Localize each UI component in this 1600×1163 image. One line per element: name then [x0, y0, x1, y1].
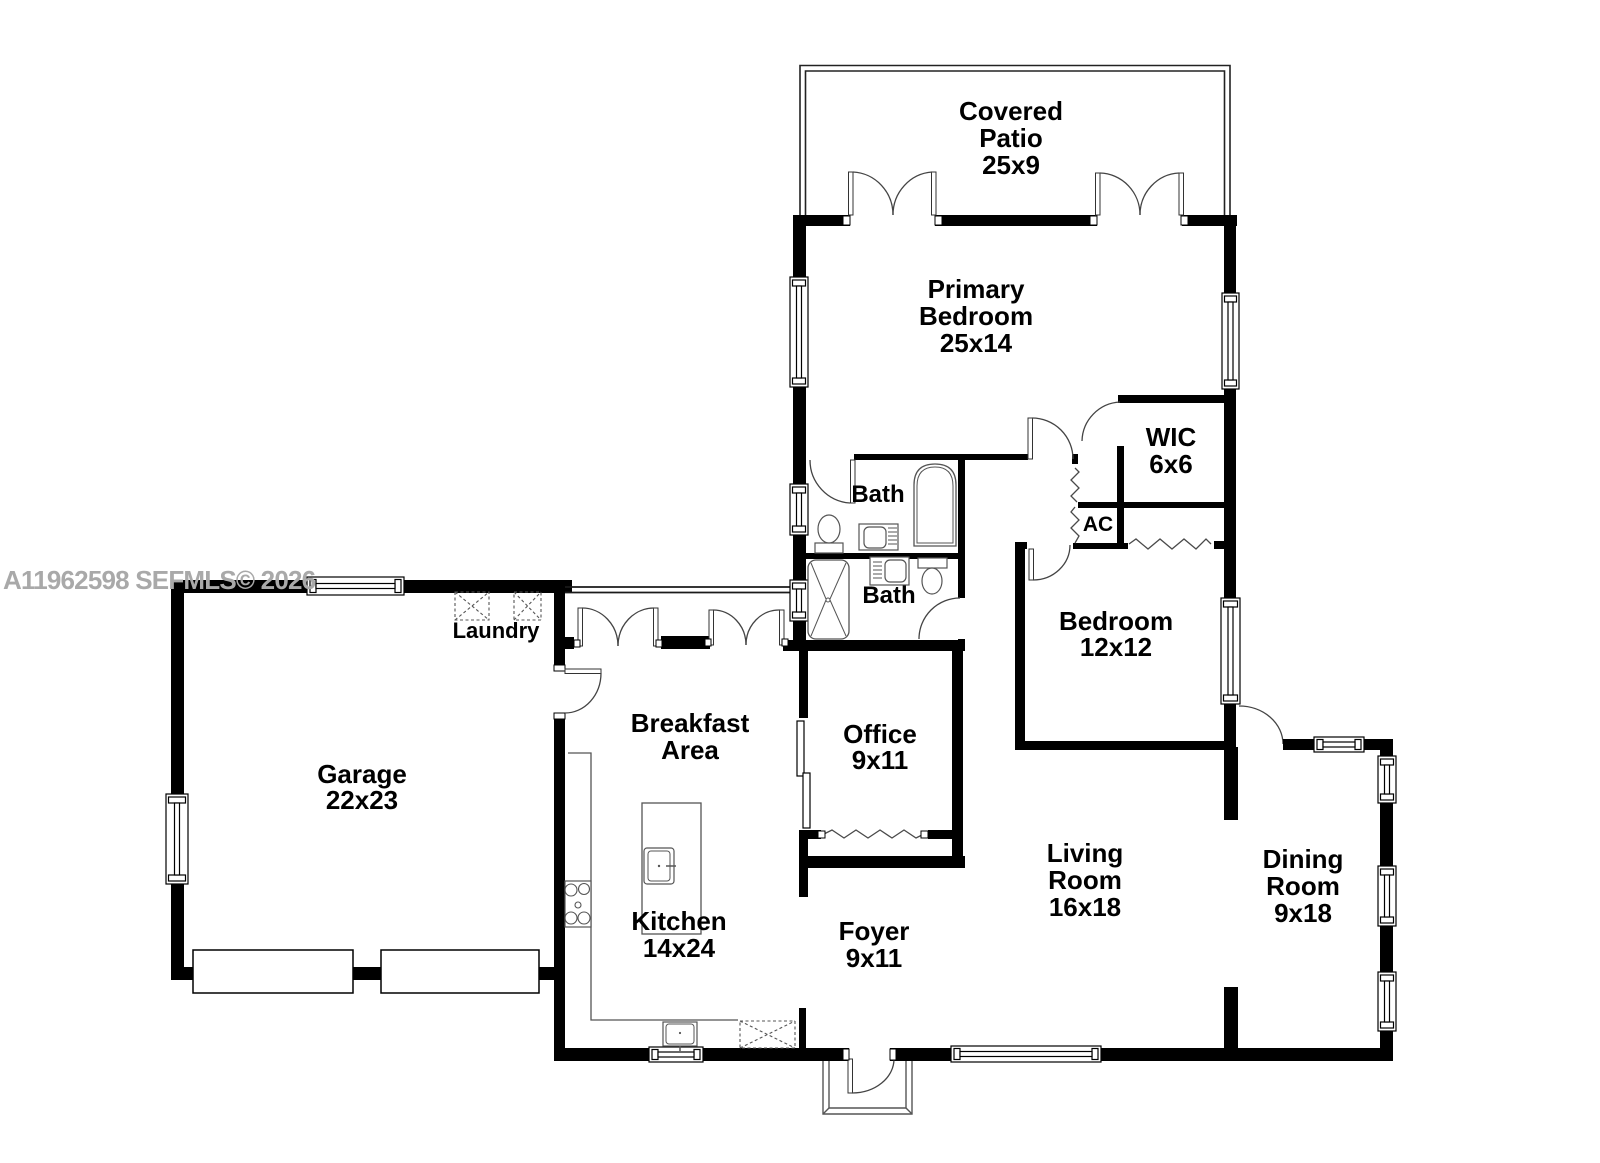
svg-text:25x9: 25x9 [982, 150, 1040, 180]
svg-text:A11962598 SEFMLS© 2026: A11962598 SEFMLS© 2026 [3, 565, 316, 595]
svg-text:Bath: Bath [851, 481, 904, 508]
svg-text:WIC: WIC [1146, 422, 1197, 452]
svg-text:14x24: 14x24 [643, 933, 716, 963]
svg-text:Foyer: Foyer [839, 916, 910, 946]
svg-text:Primary: Primary [928, 274, 1025, 304]
svg-text:6x6: 6x6 [1149, 449, 1192, 479]
svg-text:Dining: Dining [1263, 844, 1344, 874]
svg-text:25x14: 25x14 [940, 328, 1013, 358]
svg-text:Living: Living [1047, 838, 1124, 868]
svg-text:9x11: 9x11 [852, 745, 908, 775]
svg-text:Bath: Bath [862, 582, 915, 609]
svg-text:Laundry: Laundry [453, 618, 541, 643]
svg-text:Breakfast: Breakfast [631, 708, 750, 738]
svg-text:Patio: Patio [979, 123, 1043, 153]
svg-text:AC: AC [1083, 513, 1113, 536]
svg-text:Area: Area [661, 735, 719, 765]
svg-text:Bedroom: Bedroom [919, 301, 1033, 331]
svg-text:Room: Room [1266, 871, 1340, 901]
svg-text:Room: Room [1048, 865, 1122, 895]
svg-text:12x12: 12x12 [1080, 632, 1152, 662]
svg-text:16x18: 16x18 [1049, 892, 1121, 922]
svg-text:Kitchen: Kitchen [631, 906, 726, 936]
svg-text:9x18: 9x18 [1274, 898, 1332, 928]
svg-text:22x23: 22x23 [326, 785, 398, 815]
svg-text:9x11: 9x11 [846, 943, 902, 973]
svg-text:Covered: Covered [959, 96, 1063, 126]
